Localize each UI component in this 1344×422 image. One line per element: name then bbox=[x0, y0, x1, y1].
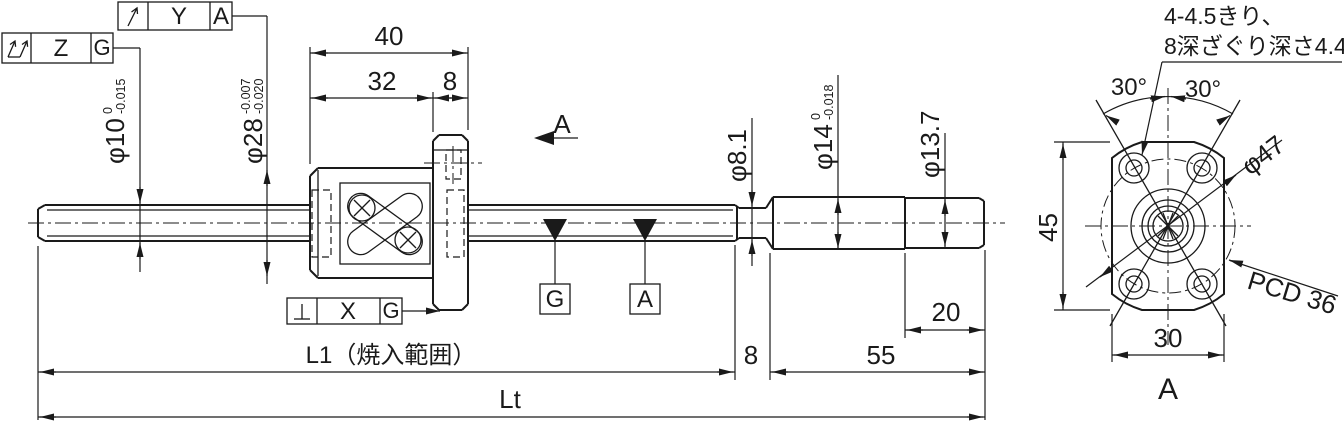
dim-text: 8 bbox=[443, 66, 457, 96]
side-view: A G A Y A bbox=[2, 2, 1005, 420]
dim-pcd36: PCD 36 bbox=[1229, 260, 1340, 320]
dim-text: φ13.7 bbox=[915, 111, 945, 178]
dim-text: 30° bbox=[1111, 74, 1147, 101]
dim-tol-upper: -0.007 bbox=[239, 79, 253, 114]
dim-text: φ10 bbox=[100, 118, 130, 164]
dim-text: 30 bbox=[1154, 323, 1183, 353]
dim-text: 8 bbox=[744, 340, 758, 370]
end-view: 30° 30° φ47 PCD 36 4-4.5きり、 8深ざぐり深さ4.4 bbox=[1033, 3, 1344, 406]
datum-letter: A bbox=[637, 286, 653, 313]
dim-tol-upper: 0 bbox=[809, 113, 823, 120]
dim-30: 30 bbox=[1112, 314, 1224, 362]
dim-text-l1-hardening-range: L1（焼入範囲） bbox=[306, 342, 477, 369]
datum-target-g: G bbox=[540, 219, 570, 314]
fcf-datum-ref: G bbox=[93, 35, 110, 60]
circular-runout-icon bbox=[128, 8, 138, 26]
section-label: A bbox=[553, 109, 571, 139]
fcf-circular-runout: Y A bbox=[118, 2, 267, 30]
fcf-total-runout: Z G bbox=[2, 33, 140, 63]
dim-phi81: φ8.1 bbox=[722, 118, 752, 266]
dim-32: 32 bbox=[310, 66, 433, 132]
dim-tol-lower: -0.020 bbox=[252, 79, 266, 114]
datum-target-a: A bbox=[630, 219, 660, 314]
fcf-datum-ref: A bbox=[213, 3, 229, 30]
dim-8-top: 8 bbox=[433, 66, 468, 98]
dim-text: φ47 bbox=[1236, 129, 1291, 181]
datum-letter: G bbox=[546, 286, 565, 313]
dim-text: 55 bbox=[867, 340, 896, 370]
dim-phi47: φ47 bbox=[1086, 129, 1290, 287]
dim-55: 55 bbox=[770, 340, 985, 372]
dim-phi10: φ10 0 -0.015 bbox=[100, 48, 140, 272]
dim-8-bottom: 8 bbox=[744, 340, 758, 370]
view-label: A bbox=[1158, 373, 1178, 406]
technical-drawing-canvas: A G A Y A bbox=[0, 0, 1344, 422]
dim-text: Lt bbox=[499, 384, 521, 414]
dim-tol-upper: 0 bbox=[101, 107, 115, 114]
note-line1: 4-4.5きり、 bbox=[1164, 3, 1285, 29]
perpendicularity-icon bbox=[294, 304, 310, 319]
recirculation-tubes bbox=[343, 188, 428, 260]
total-runout-icon bbox=[8, 41, 28, 57]
dim-tol-lower: -0.015 bbox=[114, 79, 128, 114]
dim-20: 20 bbox=[905, 297, 985, 330]
fcf-datum-ref: G bbox=[382, 298, 399, 323]
ball-screw-drawing: A G A Y A bbox=[0, 0, 1344, 422]
fcf-perpendicularity: X G bbox=[287, 298, 440, 325]
note-line2: 8深ざぐり深さ4.4 bbox=[1164, 33, 1344, 59]
counterbore-note: 4-4.5きり、 8深ざぐり深さ4.4 bbox=[1142, 3, 1344, 155]
datum-triangle bbox=[633, 219, 657, 241]
dim-text: 45 bbox=[1033, 213, 1063, 242]
fcf-tolerance-zone: X bbox=[340, 298, 356, 325]
dim-text: 20 bbox=[932, 297, 961, 327]
dim-phi28: φ28 -0.007 -0.020 bbox=[238, 16, 268, 284]
dim-text: φ28 bbox=[238, 118, 268, 164]
dim-text: PCD 36 bbox=[1244, 265, 1340, 320]
datum-triangle bbox=[543, 219, 567, 241]
section-arrow: A bbox=[534, 109, 578, 145]
fcf-tolerance-zone: Z bbox=[54, 35, 69, 62]
dim-text: 32 bbox=[368, 66, 397, 96]
fcf-tolerance-zone: Y bbox=[171, 3, 187, 30]
dim-text: φ8.1 bbox=[722, 129, 752, 182]
dim-text: 40 bbox=[375, 21, 404, 51]
section-arrowhead bbox=[534, 131, 554, 145]
dim-text: φ14 bbox=[808, 124, 838, 170]
dim-lt: Lt bbox=[38, 384, 985, 417]
dim-l1: L1（焼入範囲） bbox=[38, 342, 735, 372]
dim-tol-lower: -0.018 bbox=[822, 85, 836, 120]
dim-text: 30° bbox=[1185, 76, 1221, 103]
dim-phi137: φ13.7 bbox=[915, 111, 945, 247]
